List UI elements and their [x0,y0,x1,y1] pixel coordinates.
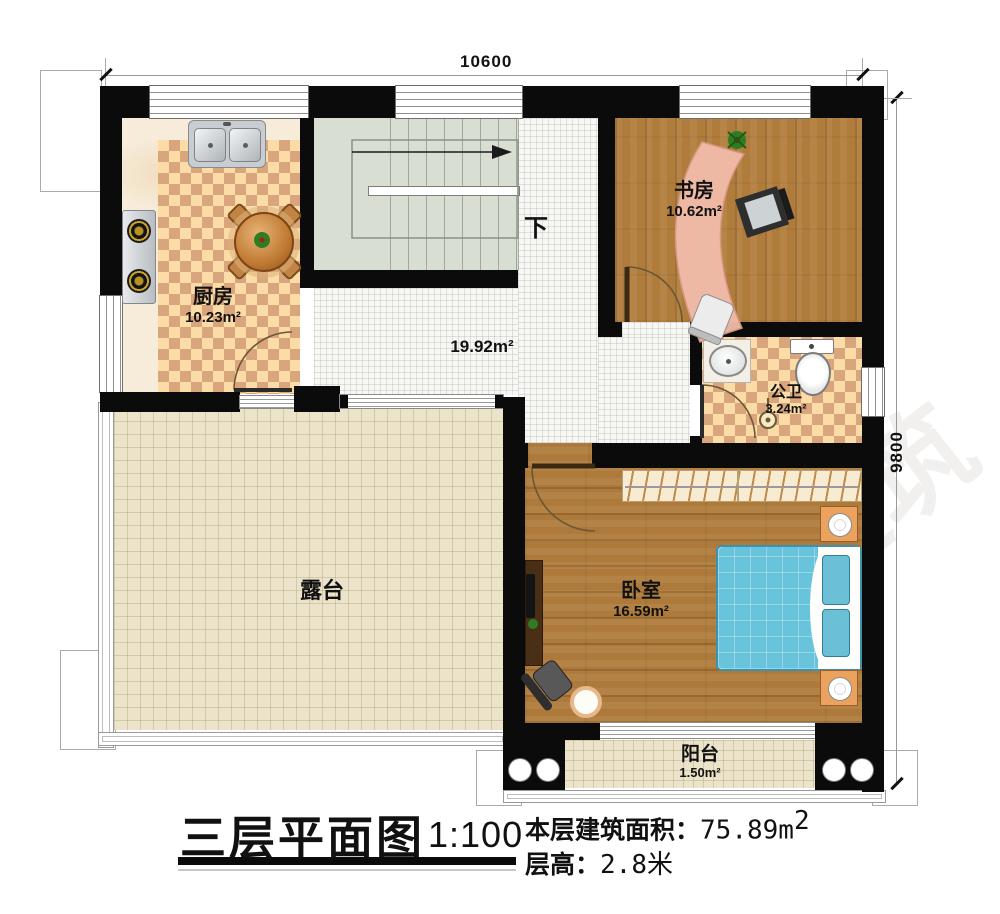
study-bottom-wall [598,322,622,337]
room-area: 1.50m² [679,766,720,781]
room-area: 16.59m² [613,603,669,620]
stairs-down-label: 下 [524,208,548,243]
balcony-parapet-bottom [503,790,886,803]
sliding-door-post [340,395,348,408]
room-name: 书房 [666,180,722,203]
terrace-parapet-left [98,402,114,748]
study-floor [615,118,862,322]
bedroom-top-wall [503,443,528,468]
room-area: 19.92m² [450,337,513,357]
study-label: 书房 10.62m² [666,180,722,220]
bedroom-label: 卧室 16.59m² [613,580,669,620]
sink-basin [194,128,226,162]
hall-floor [518,118,598,443]
floor-height-line: 层高：2.8米 [525,844,673,881]
kitchen-terrace-door-sill [240,396,294,408]
dimension-extension-box [40,70,102,192]
pillow-icon [822,609,850,657]
floor-area-label: 本层建筑面积： [525,816,700,844]
room-area: 3.24m² [765,402,806,417]
hall-floor [598,337,690,443]
terrace-label: 露台 [300,578,344,603]
bedroom-door-threshold [528,443,592,468]
bedroom-monitor-icon [526,574,535,618]
balcony-corner-wall [815,723,862,740]
room-name: 露台 [300,578,344,603]
round-rug-icon [570,686,602,718]
kitchen-sink-icon [188,120,266,168]
bathroom-left-wall [690,337,702,385]
balcony-column [508,758,532,782]
wardrobe-icon [622,470,862,502]
exterior-wall-right [862,86,884,792]
stair-rail [368,186,520,196]
lamp-icon [828,513,852,537]
top-dimension-value: 10600 [460,52,512,72]
room-name: 卧室 [613,580,669,603]
bathroom-top-wall [690,322,862,337]
title-underline-thin [178,869,516,871]
balcony-column [536,758,560,782]
kitchen-side-window [100,296,122,392]
room-name: 阳台 [679,744,720,766]
bedroom-balcony-sliding-door [600,723,815,738]
staircase-window [396,86,522,118]
study-left-wall [598,118,615,324]
bed-icon [716,545,862,671]
sink-basin [229,128,261,162]
kitchen-label: 厨房 10.23m² [185,286,241,326]
floor-plan-canvas: 柏竣建筑 柏竣建筑 www.bqjunzhu.com www.bqjunzhu.… [0,0,1000,914]
floor-height-value: 2.8米 [600,850,673,880]
dining-table-icon [234,212,294,272]
floor-area-value: 75.89 [700,815,778,845]
hall-area-label: 19.92m² [450,337,513,357]
balcony-label: 阳台 1.50m² [679,744,720,781]
floor-area-line: 本层建筑面积：75.89m2 [525,806,810,846]
nightstand-icon [820,506,858,542]
room-area: 10.23m² [185,309,241,326]
kitchen-window [150,86,308,118]
balcony-column [822,758,846,782]
terrace-floor [114,408,503,730]
kitchen-stair-wall [300,118,314,270]
hall-terrace-sliding-door [340,395,503,408]
lamp-icon [828,677,852,701]
faucet-icon [223,122,231,126]
terrace-parapet-bottom [98,732,507,746]
burner-icon [127,219,151,243]
nightstand-icon [820,670,858,706]
balcony-corner-wall [503,723,600,740]
study-window [680,86,810,118]
bed-mattress [718,547,818,669]
bathroom-window [862,368,884,416]
title-underline [178,857,516,865]
top-dimension-line [105,75,863,76]
extension-line [884,98,912,99]
right-dimension-value: 9800 [887,431,907,473]
washbasin-icon [709,345,747,377]
floor-area-sup: 2 [794,806,810,836]
pillow-icon [822,555,850,605]
hall-floor [622,322,690,337]
wardrobe-divider [737,471,739,501]
room-name: 公卫 [765,384,806,402]
kitchen-bottom-wall [100,392,240,412]
stair-bottom-wall [300,270,518,288]
stair-hall-edge [518,118,519,270]
floor-area-unit: m [778,815,794,845]
sliding-door-post [495,395,503,408]
room-name: 厨房 [185,286,241,309]
bedroom-top-wall [592,443,862,468]
floor-height-label: 层高： [525,851,600,879]
kitchen-bottom-wall-step [294,386,340,412]
stove-icon [122,210,156,304]
burner-icon [127,269,151,293]
balcony-column [850,758,874,782]
room-area: 10.62m² [666,203,722,220]
plan-scale: 1:100 [428,814,523,856]
bathroom-label: 公卫 3.24m² [765,384,806,417]
